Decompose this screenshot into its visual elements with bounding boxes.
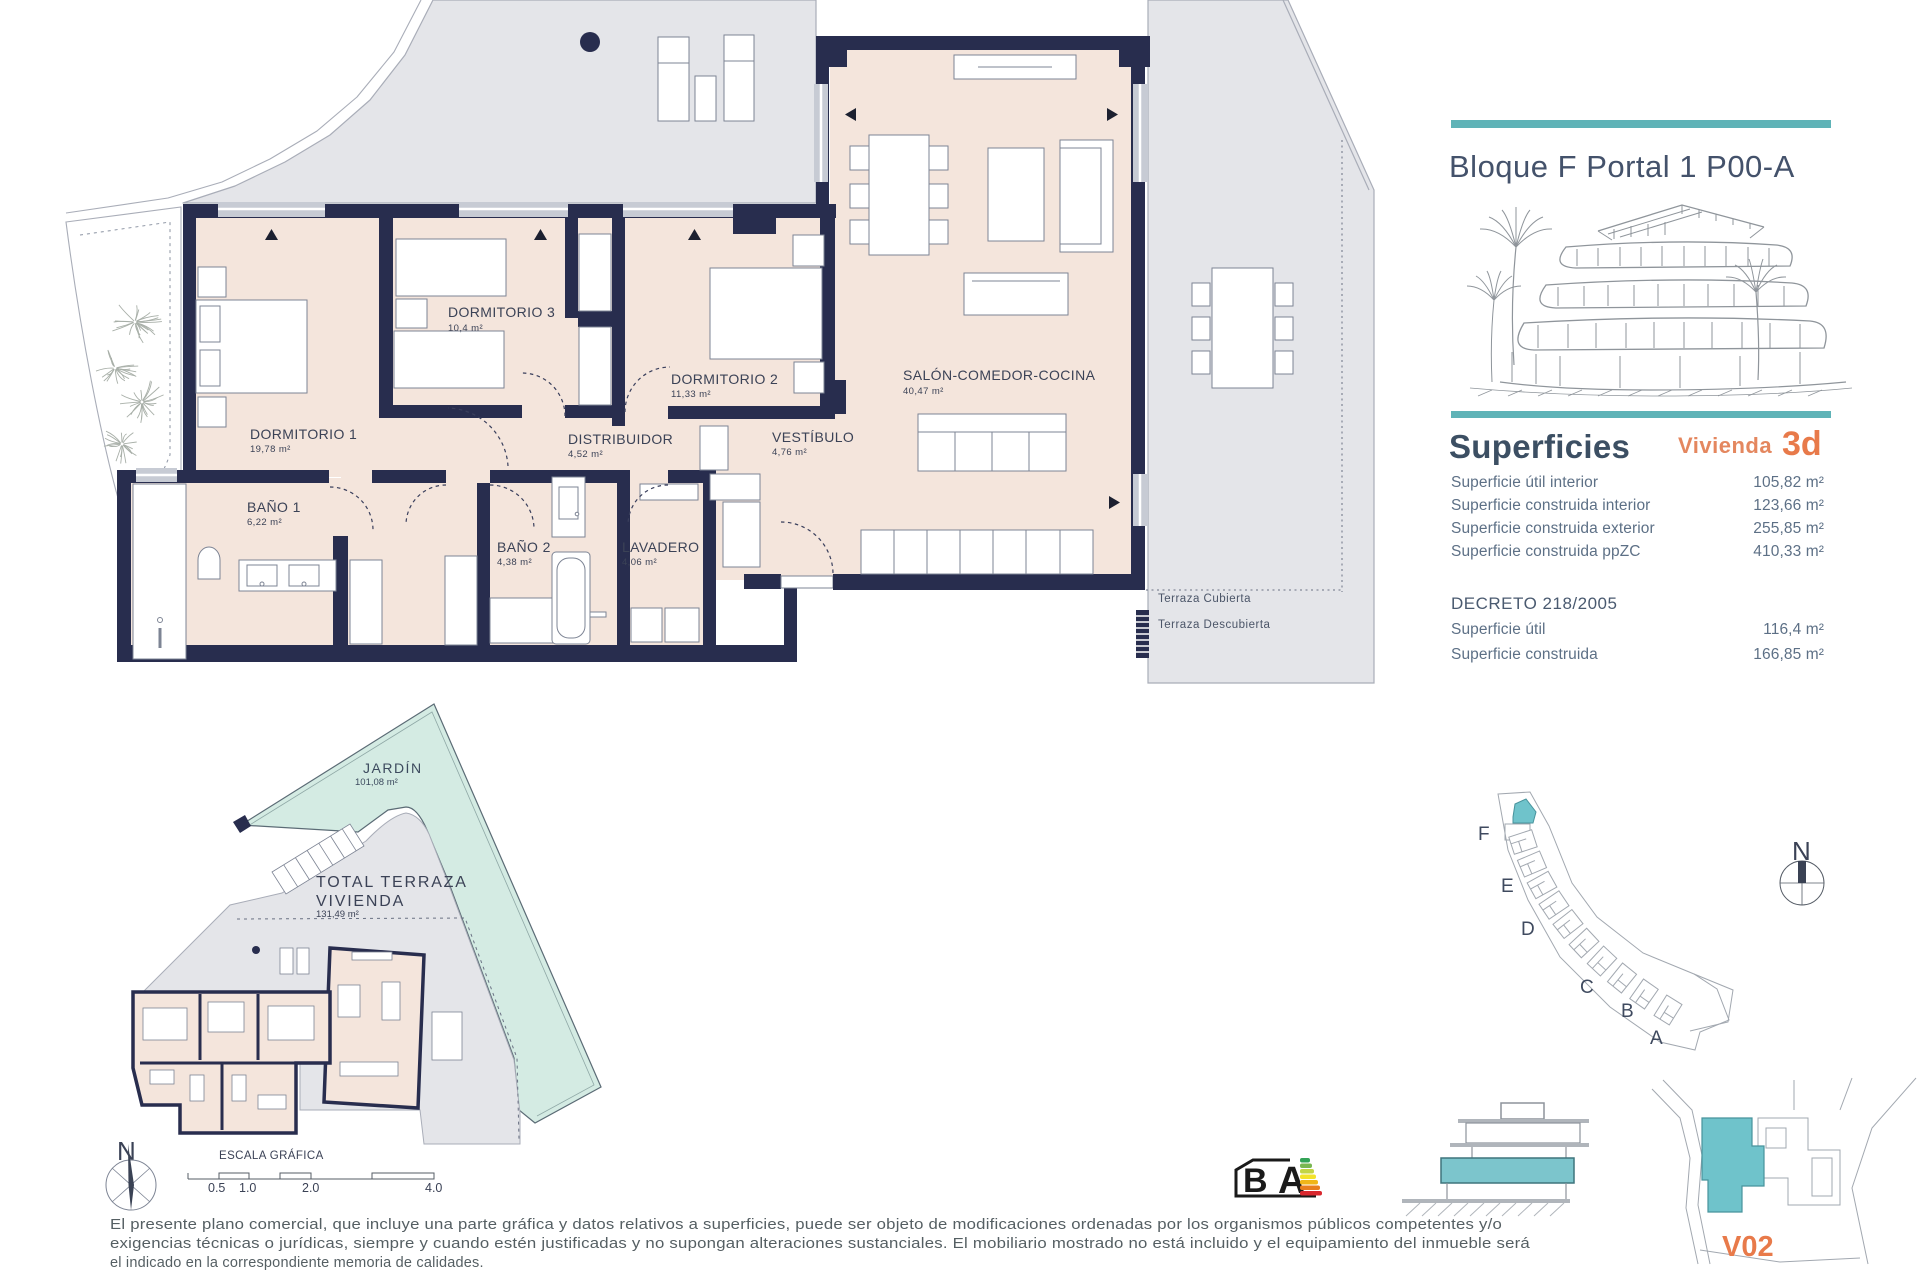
- svg-text:VESTÍBULO: VESTÍBULO: [772, 429, 854, 445]
- svg-text:E: E: [1501, 876, 1514, 897]
- svg-text:DORMITORIO 1: DORMITORIO 1: [250, 426, 357, 442]
- svg-text:ESCALA GRÁFICA: ESCALA GRÁFICA: [219, 1149, 324, 1162]
- svg-text:N: N: [117, 1136, 136, 1166]
- svg-text:11,33 m²: 11,33 m²: [671, 389, 711, 400]
- svg-text:105,82 m²: 105,82 m²: [1753, 474, 1824, 491]
- svg-text:JARDÍN: JARDÍN: [363, 760, 423, 776]
- svg-text:6,22 m²: 6,22 m²: [247, 517, 282, 528]
- svg-text:DORMITORIO 2: DORMITORIO 2: [671, 371, 778, 387]
- svg-text:VIVIENDA: VIVIENDA: [316, 893, 405, 910]
- svg-text:Vivienda: Vivienda: [1678, 433, 1772, 458]
- svg-text:C: C: [1580, 977, 1594, 998]
- svg-text:40,47 m²: 40,47 m²: [903, 386, 944, 397]
- svg-text:el indicado en la correspondie: el indicado en la correspondiente memori…: [110, 1255, 484, 1271]
- svg-text:4,38 m²: 4,38 m²: [497, 557, 532, 568]
- svg-text:D: D: [1521, 919, 1535, 940]
- svg-text:Superficie construida interior: Superficie construida interior: [1451, 497, 1650, 514]
- svg-text:2.0: 2.0: [302, 1181, 319, 1195]
- svg-text:4,76 m²: 4,76 m²: [772, 447, 807, 458]
- svg-text:Terraza Descubierta: Terraza Descubierta: [1158, 619, 1271, 631]
- svg-text:exigencias técnicas o jurídica: exigencias técnicas o jurídicas, siempre…: [110, 1236, 1531, 1252]
- svg-text:B: B: [1621, 1001, 1634, 1022]
- svg-text:F: F: [1478, 824, 1490, 845]
- svg-text:BAÑO 1: BAÑO 1: [247, 499, 301, 515]
- svg-text:DORMITORIO 3: DORMITORIO 3: [448, 304, 555, 320]
- svg-text:V02: V02: [1722, 1231, 1774, 1263]
- svg-text:Superficie construida: Superficie construida: [1451, 646, 1598, 663]
- svg-text:101,08 m²: 101,08 m²: [355, 777, 398, 788]
- svg-text:TOTAL TERRAZA: TOTAL TERRAZA: [316, 874, 468, 891]
- svg-text:B: B: [1243, 1162, 1268, 1200]
- svg-text:166,85 m²: 166,85 m²: [1753, 646, 1824, 663]
- svg-text:4,52 m²: 4,52 m²: [568, 449, 603, 460]
- svg-text:4,06 m²: 4,06 m²: [622, 557, 657, 568]
- svg-text:255,85 m²: 255,85 m²: [1753, 520, 1824, 537]
- svg-text:Superficie útil: Superficie útil: [1451, 621, 1546, 638]
- svg-text:4.0: 4.0: [425, 1181, 442, 1195]
- svg-text:BAÑO 2: BAÑO 2: [497, 539, 551, 555]
- svg-text:Superficie útil interior: Superficie útil interior: [1451, 474, 1598, 491]
- svg-text:410,33 m²: 410,33 m²: [1753, 543, 1824, 560]
- svg-text:Superficies: Superficies: [1449, 428, 1630, 465]
- svg-text:131,49 m²: 131,49 m²: [316, 909, 359, 920]
- svg-text:DISTRIBUIDOR: DISTRIBUIDOR: [568, 431, 673, 447]
- svg-text:LAVADERO: LAVADERO: [622, 539, 699, 555]
- svg-text:10,4 m²: 10,4 m²: [448, 323, 483, 334]
- svg-text:1.0: 1.0: [239, 1181, 256, 1195]
- svg-text:Superficie construida exterior: Superficie construida exterior: [1451, 520, 1655, 537]
- svg-text:SALÓN-COMEDOR-COCINA: SALÓN-COMEDOR-COCINA: [903, 367, 1096, 383]
- svg-text:A: A: [1650, 1028, 1663, 1049]
- svg-text:El presente plano comercial, q: El presente plano comercial, que incluye…: [110, 1217, 1502, 1233]
- svg-text:3d: 3d: [1782, 425, 1822, 463]
- svg-text:0.5: 0.5: [208, 1181, 225, 1195]
- svg-text:Bloque F Portal 1 P00-A: Bloque F Portal 1 P00-A: [1449, 149, 1795, 184]
- svg-text:Terraza Cubierta: Terraza Cubierta: [1158, 593, 1251, 605]
- svg-text:DECRETO 218/2005: DECRETO 218/2005: [1451, 594, 1617, 613]
- svg-text:123,66 m²: 123,66 m²: [1753, 497, 1824, 514]
- svg-text:Superficie construida ppZC: Superficie construida ppZC: [1451, 543, 1641, 560]
- svg-text:116,4 m²: 116,4 m²: [1763, 621, 1824, 638]
- svg-text:19,78 m²: 19,78 m²: [250, 444, 291, 455]
